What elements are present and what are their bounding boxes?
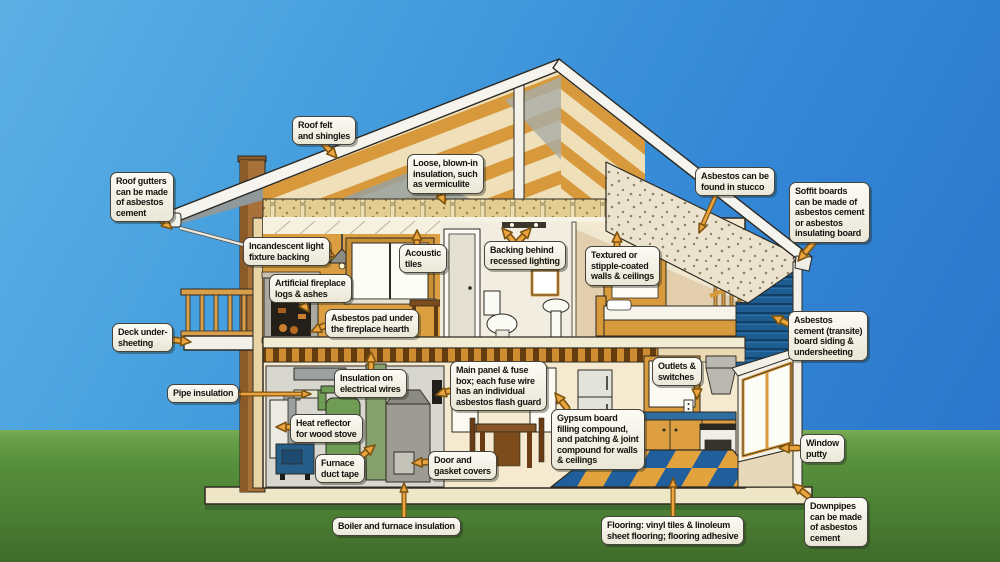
callout-text-line: tiles	[405, 259, 441, 270]
callout-text-line: Furnace	[321, 458, 359, 469]
callout-text-line: Artificial fireplace	[275, 278, 346, 289]
callout-text-line: sheet flooring; flooring adhesive	[607, 531, 738, 542]
callout-text-line: fixture backing	[249, 252, 324, 263]
callout-outlets-switches: Outlets &switches	[652, 357, 702, 386]
callout-text-line: of asbestos	[810, 522, 862, 533]
callout-text-line: & ceilings	[557, 455, 639, 466]
callout-furnace-duct-tape: Furnaceduct tape	[315, 454, 365, 483]
callout-text-line: can be made	[810, 512, 862, 523]
callout-text-line: Backing behind	[490, 245, 560, 256]
callout-fireplace-logs: Artificial fireplacelogs & ashes	[269, 274, 352, 303]
callout-transite-siding: Asbestoscement (transite)board siding &u…	[788, 311, 868, 361]
callout-roof-gutters: Roof gutterscan be madeof asbestoscement	[110, 172, 174, 222]
callout-text-line: Asbestos can be	[701, 171, 769, 182]
callout-text-line: cement	[116, 208, 168, 219]
callout-boiler-furnace: Boiler and furnace insulation	[332, 517, 461, 536]
callout-backing-recessed-lighting: Backing behindrecessed lighting	[484, 241, 566, 270]
callout-text-line: Asbestos pad under	[331, 313, 413, 324]
callout-text-line: Insulation on	[340, 373, 401, 384]
callout-text-line: asbestos cement	[795, 207, 864, 218]
callout-text-line: Incandescent light	[249, 241, 324, 252]
callout-door-gasket: Door andgasket covers	[428, 451, 497, 480]
callout-text-line: the fireplace hearth	[331, 324, 413, 335]
callout-text-line: and shingles	[298, 131, 350, 142]
callout-text-line: Window	[806, 438, 839, 449]
callout-textured-walls: Textured orstipple-coatedwalls & ceiling…	[585, 246, 660, 286]
callout-layer: Roof gutterscan be madeof asbestoscement…	[0, 0, 1000, 562]
callout-text-line: insulating board	[795, 228, 864, 239]
callout-text-line: sheeting	[118, 338, 167, 349]
callout-soffit-boards: Soffit boardscan be made ofasbestos ceme…	[789, 182, 870, 243]
callout-text-line: logs & ashes	[275, 289, 346, 300]
callout-text-line: for wood stove	[296, 429, 357, 440]
callout-text-line: putty	[806, 449, 839, 460]
callout-text-line: asbestos flash guard	[456, 397, 541, 408]
callout-text-line: filling compound,	[557, 424, 639, 435]
callout-asbestos-pad: Asbestos pad underthe fireplace hearth	[325, 309, 419, 338]
callout-text-line: and patching & joint	[557, 434, 639, 445]
callout-text-line: as vermiculite	[413, 179, 478, 190]
callout-text-line: Pipe insulation	[173, 388, 233, 399]
callout-text-line: Acoustic	[405, 248, 441, 259]
callout-text-line: recessed lighting	[490, 256, 560, 267]
callout-text-line: undersheeting	[794, 347, 862, 358]
callout-text-line: has an individual	[456, 386, 541, 397]
callout-text-line: Asbestos	[794, 315, 862, 326]
callout-text-line: Flooring: vinyl tiles & linoleum	[607, 520, 738, 531]
callout-loose-insulation: Loose, blown-ininsulation, suchas vermic…	[407, 154, 484, 194]
callout-pipe-insulation: Pipe insulation	[167, 384, 239, 403]
callout-deck-undersheeting: Deck under-sheeting	[112, 323, 173, 352]
callout-text-line: Boiler and furnace insulation	[338, 521, 455, 532]
callout-text-line: electrical wires	[340, 384, 401, 395]
callout-text-line: or asbestos	[795, 218, 864, 229]
callout-heat-reflector: Heat reflectorfor wood stove	[290, 414, 363, 443]
callout-text-line: gasket covers	[434, 466, 491, 477]
callout-text-line: Textured or	[591, 250, 654, 261]
callout-text-line: Outlets &	[658, 361, 696, 372]
callout-text-line: Loose, blown-in	[413, 158, 478, 169]
callout-downpipes: Downpipescan be madeof asbestoscement	[804, 497, 868, 547]
callout-flooring: Flooring: vinyl tiles & linoleumsheet fl…	[601, 516, 744, 545]
callout-gypsum-board: Gypsum boardfilling compound,and patchin…	[551, 409, 645, 470]
callout-text-line: can be made	[116, 187, 168, 198]
callout-text-line: stipple-coated	[591, 261, 654, 272]
callout-main-panel: Main panel & fusebox; each fuse wirehas …	[450, 361, 547, 411]
callout-text-line: board siding &	[794, 336, 862, 347]
callout-text-line: Roof felt	[298, 120, 350, 131]
callout-incandescent-backing: Incandescent lightfixture backing	[243, 237, 330, 266]
callout-text-line: Deck under-	[118, 327, 167, 338]
callout-text-line: can be made of	[795, 197, 864, 208]
callout-text-line: Door and	[434, 455, 491, 466]
asbestos-house-diagram: Roof gutterscan be madeof asbestoscement…	[0, 0, 1000, 562]
callout-text-line: insulation, such	[413, 169, 478, 180]
callout-insulation-wires: Insulation onelectrical wires	[334, 369, 407, 398]
callout-roof-felt: Roof feltand shingles	[292, 116, 356, 145]
callout-text-line: duct tape	[321, 469, 359, 480]
callout-acoustic-tiles: Acoustictiles	[399, 244, 447, 273]
callout-text-line: cement (transite)	[794, 326, 862, 337]
callout-text-line: Downpipes	[810, 501, 862, 512]
callout-text-line: compound for walls	[557, 445, 639, 456]
callout-text-line: cement	[810, 533, 862, 544]
callout-text-line: Heat reflector	[296, 418, 357, 429]
callout-text-line: switches	[658, 372, 696, 383]
callout-text-line: Soffit boards	[795, 186, 864, 197]
callout-text-line: walls & ceilings	[591, 271, 654, 282]
callout-text-line: of asbestos	[116, 197, 168, 208]
callout-text-line: box; each fuse wire	[456, 376, 541, 387]
callout-text-line: Main panel & fuse	[456, 365, 541, 376]
callout-text-line: Gypsum board	[557, 413, 639, 424]
callout-stucco: Asbestos can befound in stucco	[695, 167, 775, 196]
callout-text-line: Roof gutters	[116, 176, 168, 187]
callout-window-putty: Windowputty	[800, 434, 845, 463]
callout-text-line: found in stucco	[701, 182, 769, 193]
